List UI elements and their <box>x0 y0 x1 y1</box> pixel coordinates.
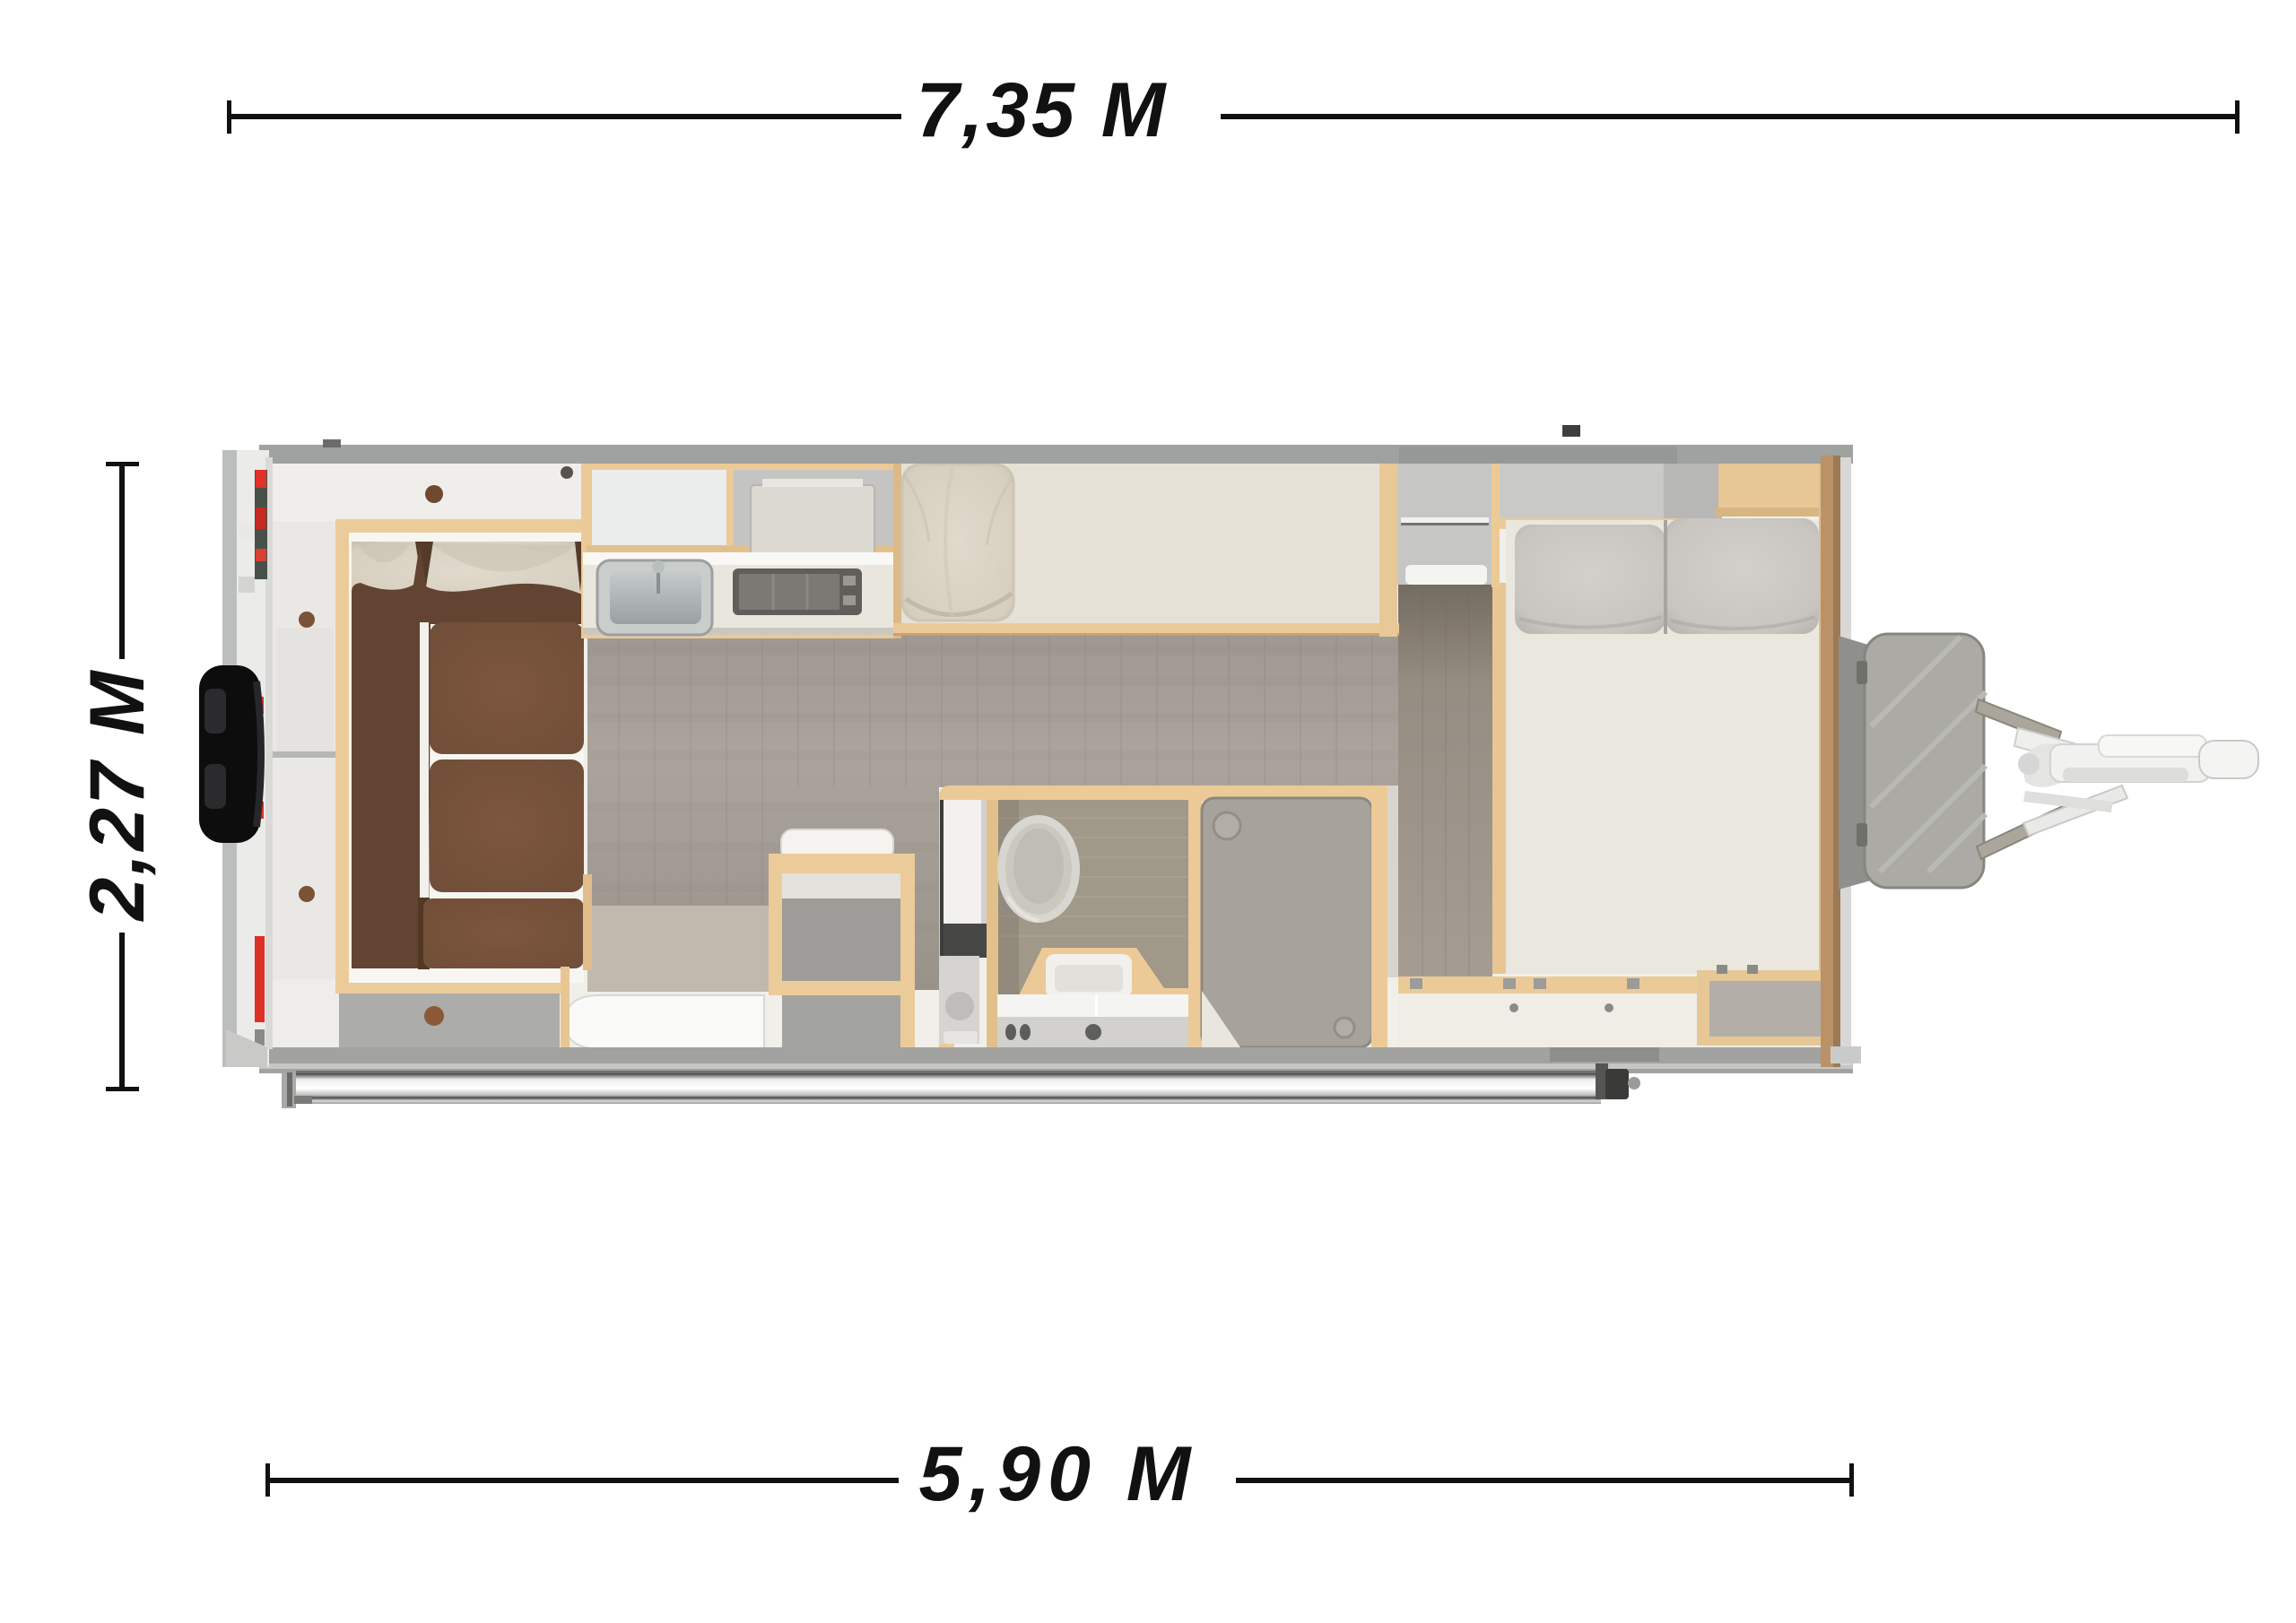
svg-text:7,35 M: 7,35 M <box>917 67 1169 153</box>
svg-text:2,27 M: 2,27 M <box>74 669 161 923</box>
svg-text:5,90 M: 5,90 M <box>919 1431 1198 1517</box>
